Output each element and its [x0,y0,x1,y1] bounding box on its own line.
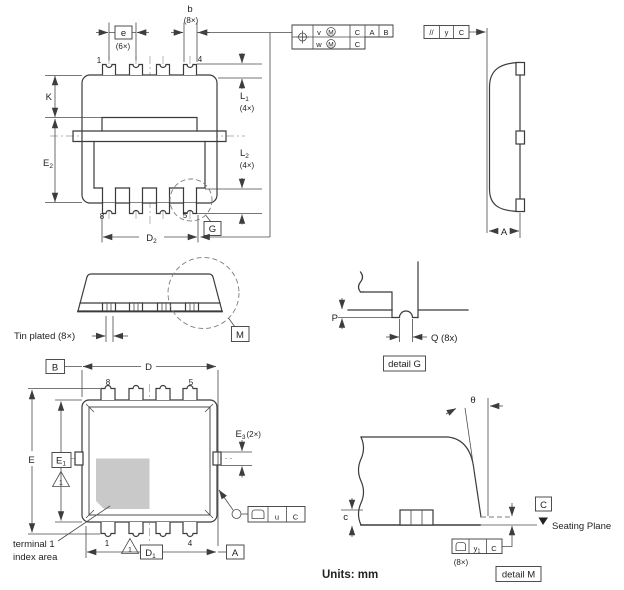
top-view: G 1 4 8 5 b (8×) e (6×) K E2 L1 (4×) L2 [43,4,262,245]
dim-e3-label: E3(2×) [236,429,262,441]
pos-datum-c: C [355,28,361,37]
dim-k-label: K [46,92,53,103]
detail-g-view: P Q (8x) detail G [332,262,468,371]
dim-b-label: b [187,4,192,15]
top-view-pin1-label: 1 [97,56,102,65]
dim-e-count: (6×) [116,42,131,51]
pos-datum-a: A [369,28,374,37]
dim-e-label: E [28,455,34,466]
top-view-pin5-label: 5 [183,211,188,220]
parallelism-datum: C [459,28,465,37]
dim-c-label: c [343,512,348,523]
dim-q-label: Q (8x) [431,333,457,344]
coplanarity-y1-datum: C [491,544,497,553]
dim-l2-count: (4×) [240,161,255,170]
dim-b-count: (8×) [184,16,199,25]
seating-plane-triangle-icon [539,518,549,526]
bottom-view-pin8-label: 8 [106,378,111,387]
pos-tol-modifier-2: M [328,41,333,48]
coplanarity-u-datum: C [293,513,299,522]
pos-row2-datum-c: C [355,40,361,49]
parallelism-tol: y [445,28,449,37]
seating-plane-label: Seating Plane [552,521,611,532]
dim-l1-count: (4×) [240,104,255,113]
units-label: Units: mm [322,569,378,581]
dim-a-label: A [501,227,508,238]
angle-theta-label: θ [470,395,475,406]
detail-m-view: θ c y1 C (8×) C Seating Plane detail M [341,395,611,582]
coplanarity-y1-count: (8×) [454,558,469,567]
detail-m-ref-label: M [236,330,244,341]
dim-l2-label: L2 [240,148,249,160]
bottom-view-pin1-label: 1 [105,539,110,548]
pos-tol-w: w [315,40,322,49]
dim-l1-label: L1 [240,91,249,103]
drawing-canvas: G 1 4 8 5 b (8×) e (6×) K E2 L1 (4×) L2 [0,0,624,590]
detail-g-ref-label: G [209,224,216,235]
svg-text:1: 1 [128,547,132,554]
terminal-note-line1: terminal 1 [13,539,55,550]
pos-datum-b: B [383,28,388,37]
bottom-view-pin5-label: 5 [189,378,194,387]
coplanarity-y1-frame: y1 C (8×) [452,539,502,567]
dim-d-label: D [145,362,152,373]
dim-e-label: e [121,28,126,39]
bottom-view-pin4-label: 4 [188,539,193,548]
front-view: M Tin plated (8×) [14,258,249,343]
terminal1-index-shading [96,459,150,510]
dim-p-label: P [332,313,338,324]
svg-text:1: 1 [59,480,63,487]
coplanarity-u-frame: u C [219,490,305,522]
parallelism-frame: // y C [424,26,486,39]
top-view-pin4-label: 4 [198,55,203,64]
datum-b-label: B [52,363,58,374]
terminal-note-line2: index area [13,552,58,563]
pos-tol-v: v [317,28,321,37]
pos-tol-modifier-1: M [328,29,333,36]
tin-plated-label: Tin plated (8×) [14,331,75,342]
coplanarity-u-tol: u [275,513,279,522]
datum-c-label: C [540,500,547,511]
dim-e2-label: E2 [43,158,53,170]
side-view: // y C A [424,26,525,239]
detail-g-caption: detail G [388,359,421,370]
datum-a-label: A [232,548,239,559]
detail-m-caption: detail M [502,570,535,581]
all-around-circle-icon [232,510,241,519]
bottom-view: 8 5 1 4 B D E E1 1 E3(2×) [13,359,305,564]
package-outline-drawing: G 1 4 8 5 b (8×) e (6×) K E2 L1 (4×) L2 [0,0,624,590]
